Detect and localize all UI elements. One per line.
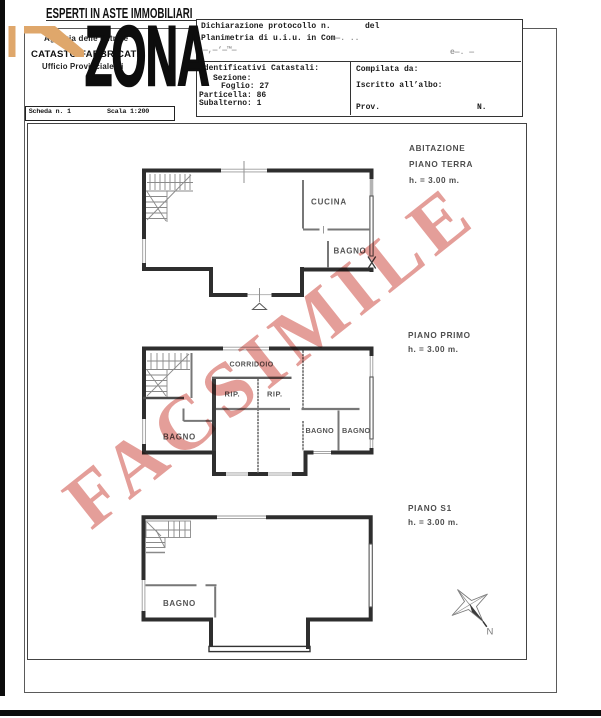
- svg-text:N: N: [487, 627, 494, 638]
- svg-text:BAGNO: BAGNO: [306, 426, 334, 435]
- svg-text:BAGNO: BAGNO: [163, 599, 196, 608]
- svg-text:BAGNO: BAGNO: [342, 426, 370, 435]
- svg-text:CUCINA: CUCINA: [311, 198, 347, 207]
